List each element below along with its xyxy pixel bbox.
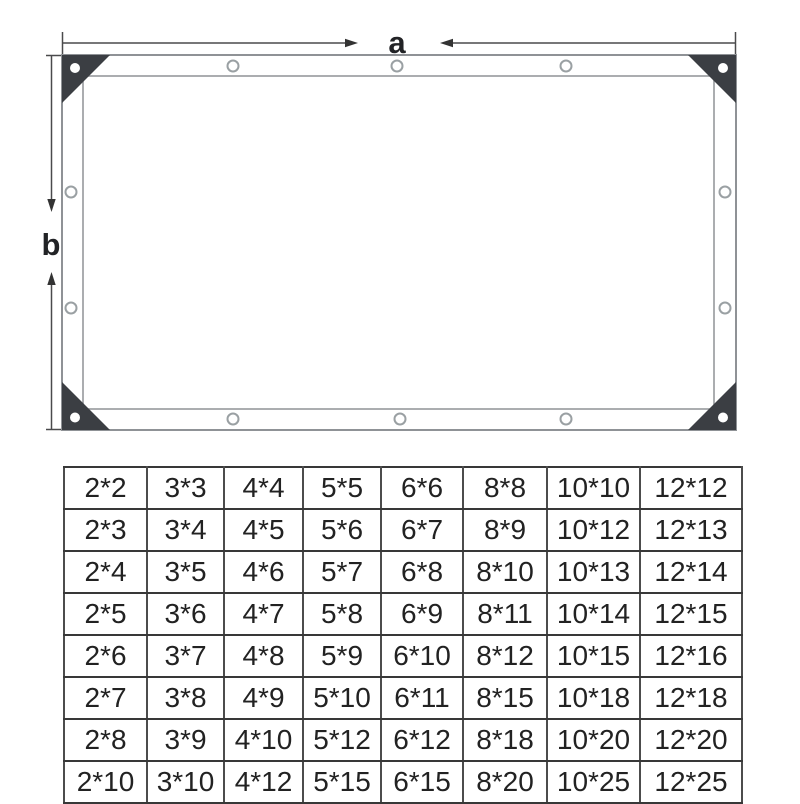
size-cell: 8*10 <box>463 551 547 593</box>
size-cell: 4*9 <box>224 677 303 719</box>
table-row: 2*33*44*55*66*78*910*1212*13 <box>64 509 742 551</box>
size-cell: 2*7 <box>64 677 147 719</box>
size-cell: 4*12 <box>224 761 303 803</box>
table-row: 2*43*54*65*76*88*1010*1312*14 <box>64 551 742 593</box>
size-cell: 2*3 <box>64 509 147 551</box>
size-cell: 4*6 <box>224 551 303 593</box>
height-label: b <box>42 227 61 262</box>
arrow-down-icon <box>47 199 55 212</box>
grommet-icon <box>561 414 572 425</box>
size-cell: 12*25 <box>640 761 742 803</box>
size-cell: 6*12 <box>381 719 463 761</box>
size-cell: 10*25 <box>547 761 640 803</box>
size-cell: 5*7 <box>303 551 381 593</box>
size-cell: 8*11 <box>463 593 547 635</box>
size-cell: 10*18 <box>547 677 640 719</box>
size-cell: 8*12 <box>463 635 547 677</box>
grommet-icon <box>395 414 406 425</box>
size-cell: 10*13 <box>547 551 640 593</box>
size-cell: 3*7 <box>147 635 224 677</box>
table-row: 2*53*64*75*86*98*1110*1412*15 <box>64 593 742 635</box>
size-cell: 12*12 <box>640 467 742 509</box>
size-cell: 12*14 <box>640 551 742 593</box>
size-cell: 5*9 <box>303 635 381 677</box>
corner-grommet-icon <box>70 63 80 73</box>
corner-grommet-icon <box>718 413 728 423</box>
tarp-diagram: a b <box>0 0 800 460</box>
page: { "diagram": { "width_label": "a", "heig… <box>0 0 800 800</box>
size-cell: 8*8 <box>463 467 547 509</box>
size-cell: 2*10 <box>64 761 147 803</box>
table-row: 2*103*104*125*156*158*2010*2512*25 <box>64 761 742 803</box>
size-cell: 5*6 <box>303 509 381 551</box>
grommet-icon <box>228 61 239 72</box>
size-cell: 12*15 <box>640 593 742 635</box>
size-cell: 12*13 <box>640 509 742 551</box>
size-cell: 5*15 <box>303 761 381 803</box>
tarp-diagram-svg: a b <box>0 0 800 460</box>
size-cell: 3*4 <box>147 509 224 551</box>
size-cell: 10*12 <box>547 509 640 551</box>
size-cell: 6*8 <box>381 551 463 593</box>
grommet-icon <box>561 61 572 72</box>
grommet-icon <box>392 61 403 72</box>
grommet-icon <box>720 187 731 198</box>
size-cell: 4*10 <box>224 719 303 761</box>
size-cell: 10*15 <box>547 635 640 677</box>
size-cell: 12*16 <box>640 635 742 677</box>
grommet-icon <box>66 303 77 314</box>
table-row: 2*73*84*95*106*118*1510*1812*18 <box>64 677 742 719</box>
size-cell: 6*15 <box>381 761 463 803</box>
table-row: 2*83*94*105*126*128*1810*2012*20 <box>64 719 742 761</box>
corner-grommet-icon <box>70 413 80 423</box>
size-cell: 6*6 <box>381 467 463 509</box>
size-cell: 6*7 <box>381 509 463 551</box>
size-cell: 5*10 <box>303 677 381 719</box>
size-cell: 2*4 <box>64 551 147 593</box>
size-cell: 10*20 <box>547 719 640 761</box>
size-cell: 4*5 <box>224 509 303 551</box>
size-cell: 4*7 <box>224 593 303 635</box>
grommet-icon <box>720 303 731 314</box>
size-cell: 8*20 <box>463 761 547 803</box>
table-row: 2*23*34*45*56*68*810*1012*12 <box>64 467 742 509</box>
size-cell: 12*20 <box>640 719 742 761</box>
arrow-up-icon <box>47 272 55 285</box>
size-cell: 6*10 <box>381 635 463 677</box>
size-cell: 6*9 <box>381 593 463 635</box>
size-cell: 10*14 <box>547 593 640 635</box>
tarp-outer-edge <box>62 55 736 430</box>
size-cell: 8*15 <box>463 677 547 719</box>
size-cell: 10*10 <box>547 467 640 509</box>
arrow-left-icon <box>440 39 453 47</box>
size-cell: 3*9 <box>147 719 224 761</box>
arrow-right-icon <box>345 39 358 47</box>
size-cell: 5*12 <box>303 719 381 761</box>
size-cell: 6*11 <box>381 677 463 719</box>
grommet-icon <box>66 187 77 198</box>
size-cell: 8*18 <box>463 719 547 761</box>
size-cell: 3*8 <box>147 677 224 719</box>
size-table-body: 2*23*34*45*56*68*810*1012*122*33*44*55*6… <box>64 467 742 803</box>
size-cell: 2*5 <box>64 593 147 635</box>
corner-grommet-icon <box>718 63 728 73</box>
size-cell: 3*10 <box>147 761 224 803</box>
size-cell: 4*8 <box>224 635 303 677</box>
size-cell: 4*4 <box>224 467 303 509</box>
size-cell: 8*9 <box>463 509 547 551</box>
size-cell: 2*2 <box>64 467 147 509</box>
size-cell: 3*6 <box>147 593 224 635</box>
table-row: 2*63*74*85*96*108*1210*1512*16 <box>64 635 742 677</box>
size-cell: 2*8 <box>64 719 147 761</box>
size-chart-table: 2*23*34*45*56*68*810*1012*122*33*44*55*6… <box>63 466 743 804</box>
size-cell: 2*6 <box>64 635 147 677</box>
size-cell: 5*8 <box>303 593 381 635</box>
size-cell: 3*5 <box>147 551 224 593</box>
size-cell: 3*3 <box>147 467 224 509</box>
grommet-icon <box>228 414 239 425</box>
size-cell: 12*18 <box>640 677 742 719</box>
size-cell: 5*5 <box>303 467 381 509</box>
